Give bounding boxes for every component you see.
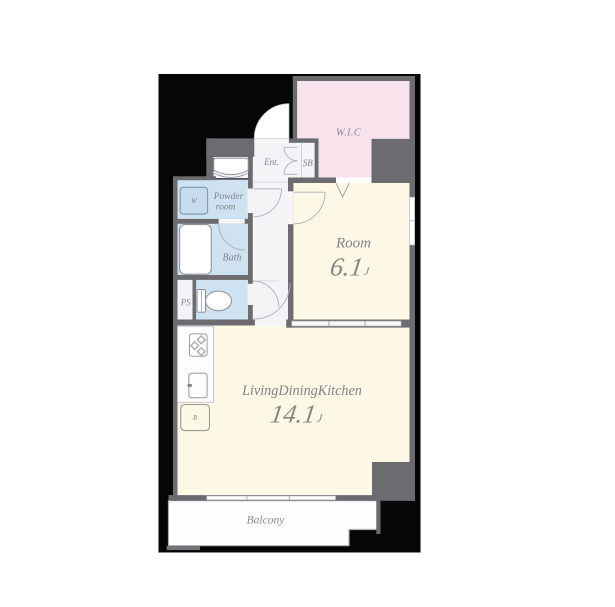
svg-text:Bath: Bath bbox=[223, 253, 242, 264]
svg-text:PS: PS bbox=[180, 297, 191, 307]
svg-text:LivingDiningKitchen: LivingDiningKitchen bbox=[241, 383, 362, 399]
svg-text:Balcony: Balcony bbox=[247, 515, 286, 527]
svg-text:Powder: Powder bbox=[213, 192, 244, 202]
svg-text:Ent.: Ent. bbox=[263, 157, 279, 167]
svg-text:Room: Room bbox=[335, 236, 371, 252]
svg-text:W.I.C: W.I.C bbox=[336, 128, 362, 139]
svg-text:R: R bbox=[192, 414, 198, 422]
svg-text:SB: SB bbox=[303, 158, 314, 168]
svg-text:14.1: 14.1 bbox=[268, 400, 318, 429]
svg-text:room: room bbox=[216, 202, 236, 212]
svg-text:6.1: 6.1 bbox=[328, 253, 365, 282]
